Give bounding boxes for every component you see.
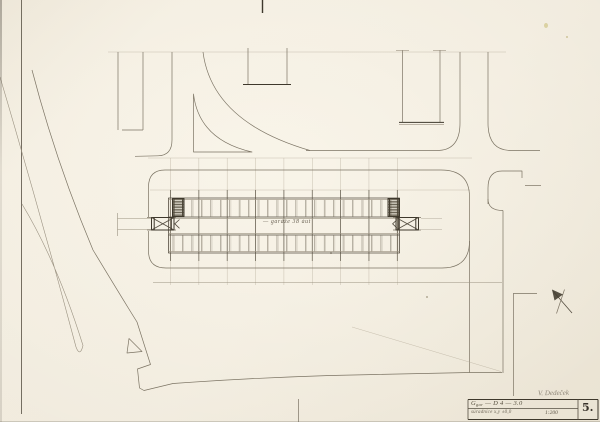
street-right bbox=[470, 171, 542, 396]
entrance-ramp-right bbox=[393, 218, 442, 231]
north-arrow bbox=[552, 290, 572, 314]
paper-stain bbox=[544, 23, 548, 28]
direction-chevron-left bbox=[175, 220, 180, 229]
title-row2-label: súradnice x,y ±0,0 bbox=[471, 410, 512, 415]
boundary-triangle-mark bbox=[127, 339, 142, 354]
parking-stall-lines bbox=[173, 200, 392, 252]
stair-hatching bbox=[173, 200, 399, 216]
scale-value: 1:200 bbox=[545, 410, 558, 416]
perimeter-road bbox=[149, 170, 503, 283]
site-plan-drawing bbox=[0, 0, 600, 422]
sheet-number: 5. bbox=[582, 401, 593, 414]
scanned-site-plan-sheet: — garáže 38 áut V. Dedeček Ggar — D 4 — … bbox=[0, 0, 600, 422]
street-upper-left bbox=[118, 52, 310, 156]
direction-chevron-right bbox=[393, 220, 398, 229]
drawing-code: Ggar — D 4 — 3.0 bbox=[471, 400, 523, 407]
construction-lines bbox=[22, 0, 507, 414]
street-upper-right bbox=[243, 48, 540, 151]
paper-speck bbox=[330, 252, 332, 254]
garage-capacity-label: — garáže 38 áut bbox=[263, 219, 311, 225]
entrance-ramp-left bbox=[147, 218, 180, 231]
drawing-code-rest: — D 4 — 3.0 bbox=[483, 400, 522, 407]
scan-edge-shadow bbox=[0, 0, 2, 422]
paper-speck bbox=[426, 296, 428, 298]
architect-signature: V. Dedeček bbox=[538, 389, 569, 398]
paper-stain bbox=[566, 36, 568, 38]
approach-road-left bbox=[118, 213, 152, 236]
traffic-island-triangle bbox=[194, 94, 253, 152]
